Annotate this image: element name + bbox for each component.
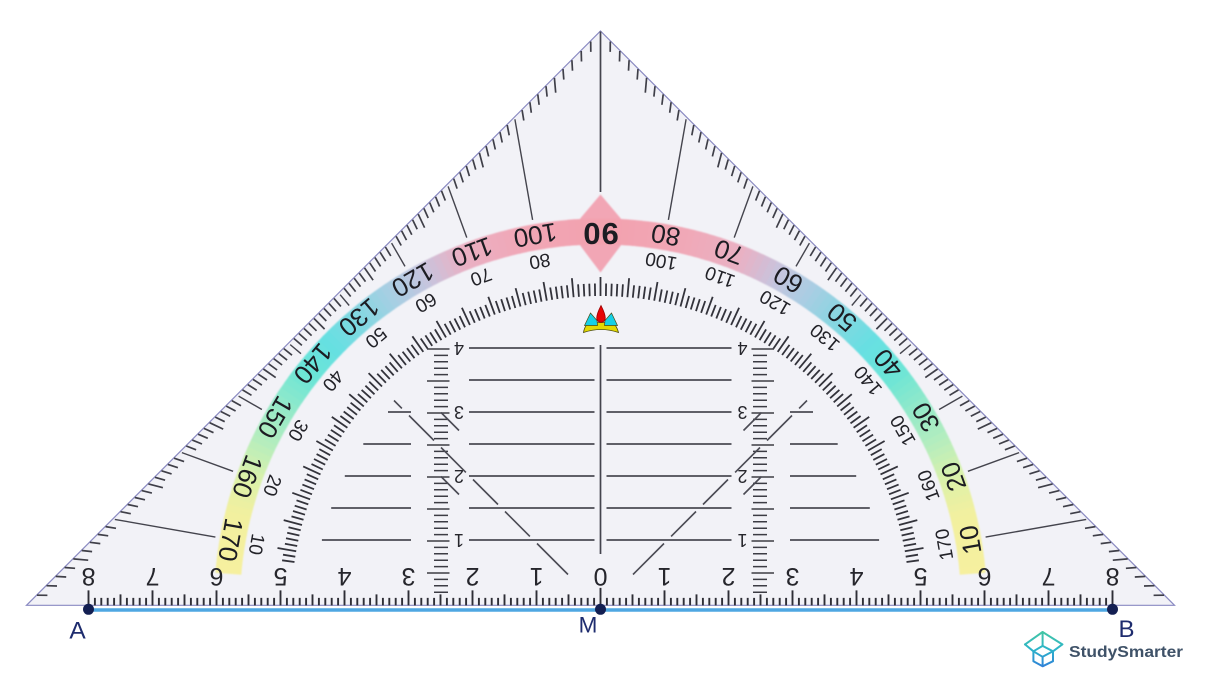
svg-text:3: 3: [454, 402, 464, 422]
svg-text:10: 10: [953, 523, 988, 557]
svg-text:3: 3: [402, 562, 416, 590]
svg-text:0: 0: [594, 562, 608, 590]
svg-text:A: A: [69, 618, 86, 645]
svg-text:StudySmarter: StudySmarter: [1069, 644, 1183, 661]
svg-text:6: 6: [978, 562, 992, 590]
svg-text:4: 4: [454, 338, 464, 358]
svg-text:8: 8: [82, 562, 96, 590]
svg-text:2: 2: [722, 562, 736, 590]
svg-text:4: 4: [849, 562, 863, 590]
svg-text:8: 8: [1106, 562, 1120, 590]
svg-text:5: 5: [914, 562, 928, 590]
svg-text:90: 90: [582, 216, 618, 251]
svg-text:7: 7: [146, 562, 160, 590]
svg-text:80: 80: [649, 218, 683, 253]
svg-text:B: B: [1118, 616, 1134, 643]
svg-text:3: 3: [737, 402, 747, 422]
svg-text:7: 7: [1042, 562, 1056, 590]
svg-text:5: 5: [274, 562, 288, 590]
svg-text:2: 2: [466, 562, 480, 590]
svg-text:1: 1: [454, 530, 464, 550]
svg-text:4: 4: [337, 562, 351, 590]
svg-text:10: 10: [244, 532, 268, 556]
svg-text:1: 1: [658, 562, 672, 590]
svg-text:1: 1: [737, 530, 747, 550]
svg-text:3: 3: [786, 562, 800, 590]
svg-text:M: M: [579, 612, 598, 637]
svg-text:80: 80: [527, 248, 551, 272]
svg-text:4: 4: [737, 338, 747, 358]
svg-text:1: 1: [530, 562, 544, 590]
svg-text:6: 6: [210, 562, 224, 590]
